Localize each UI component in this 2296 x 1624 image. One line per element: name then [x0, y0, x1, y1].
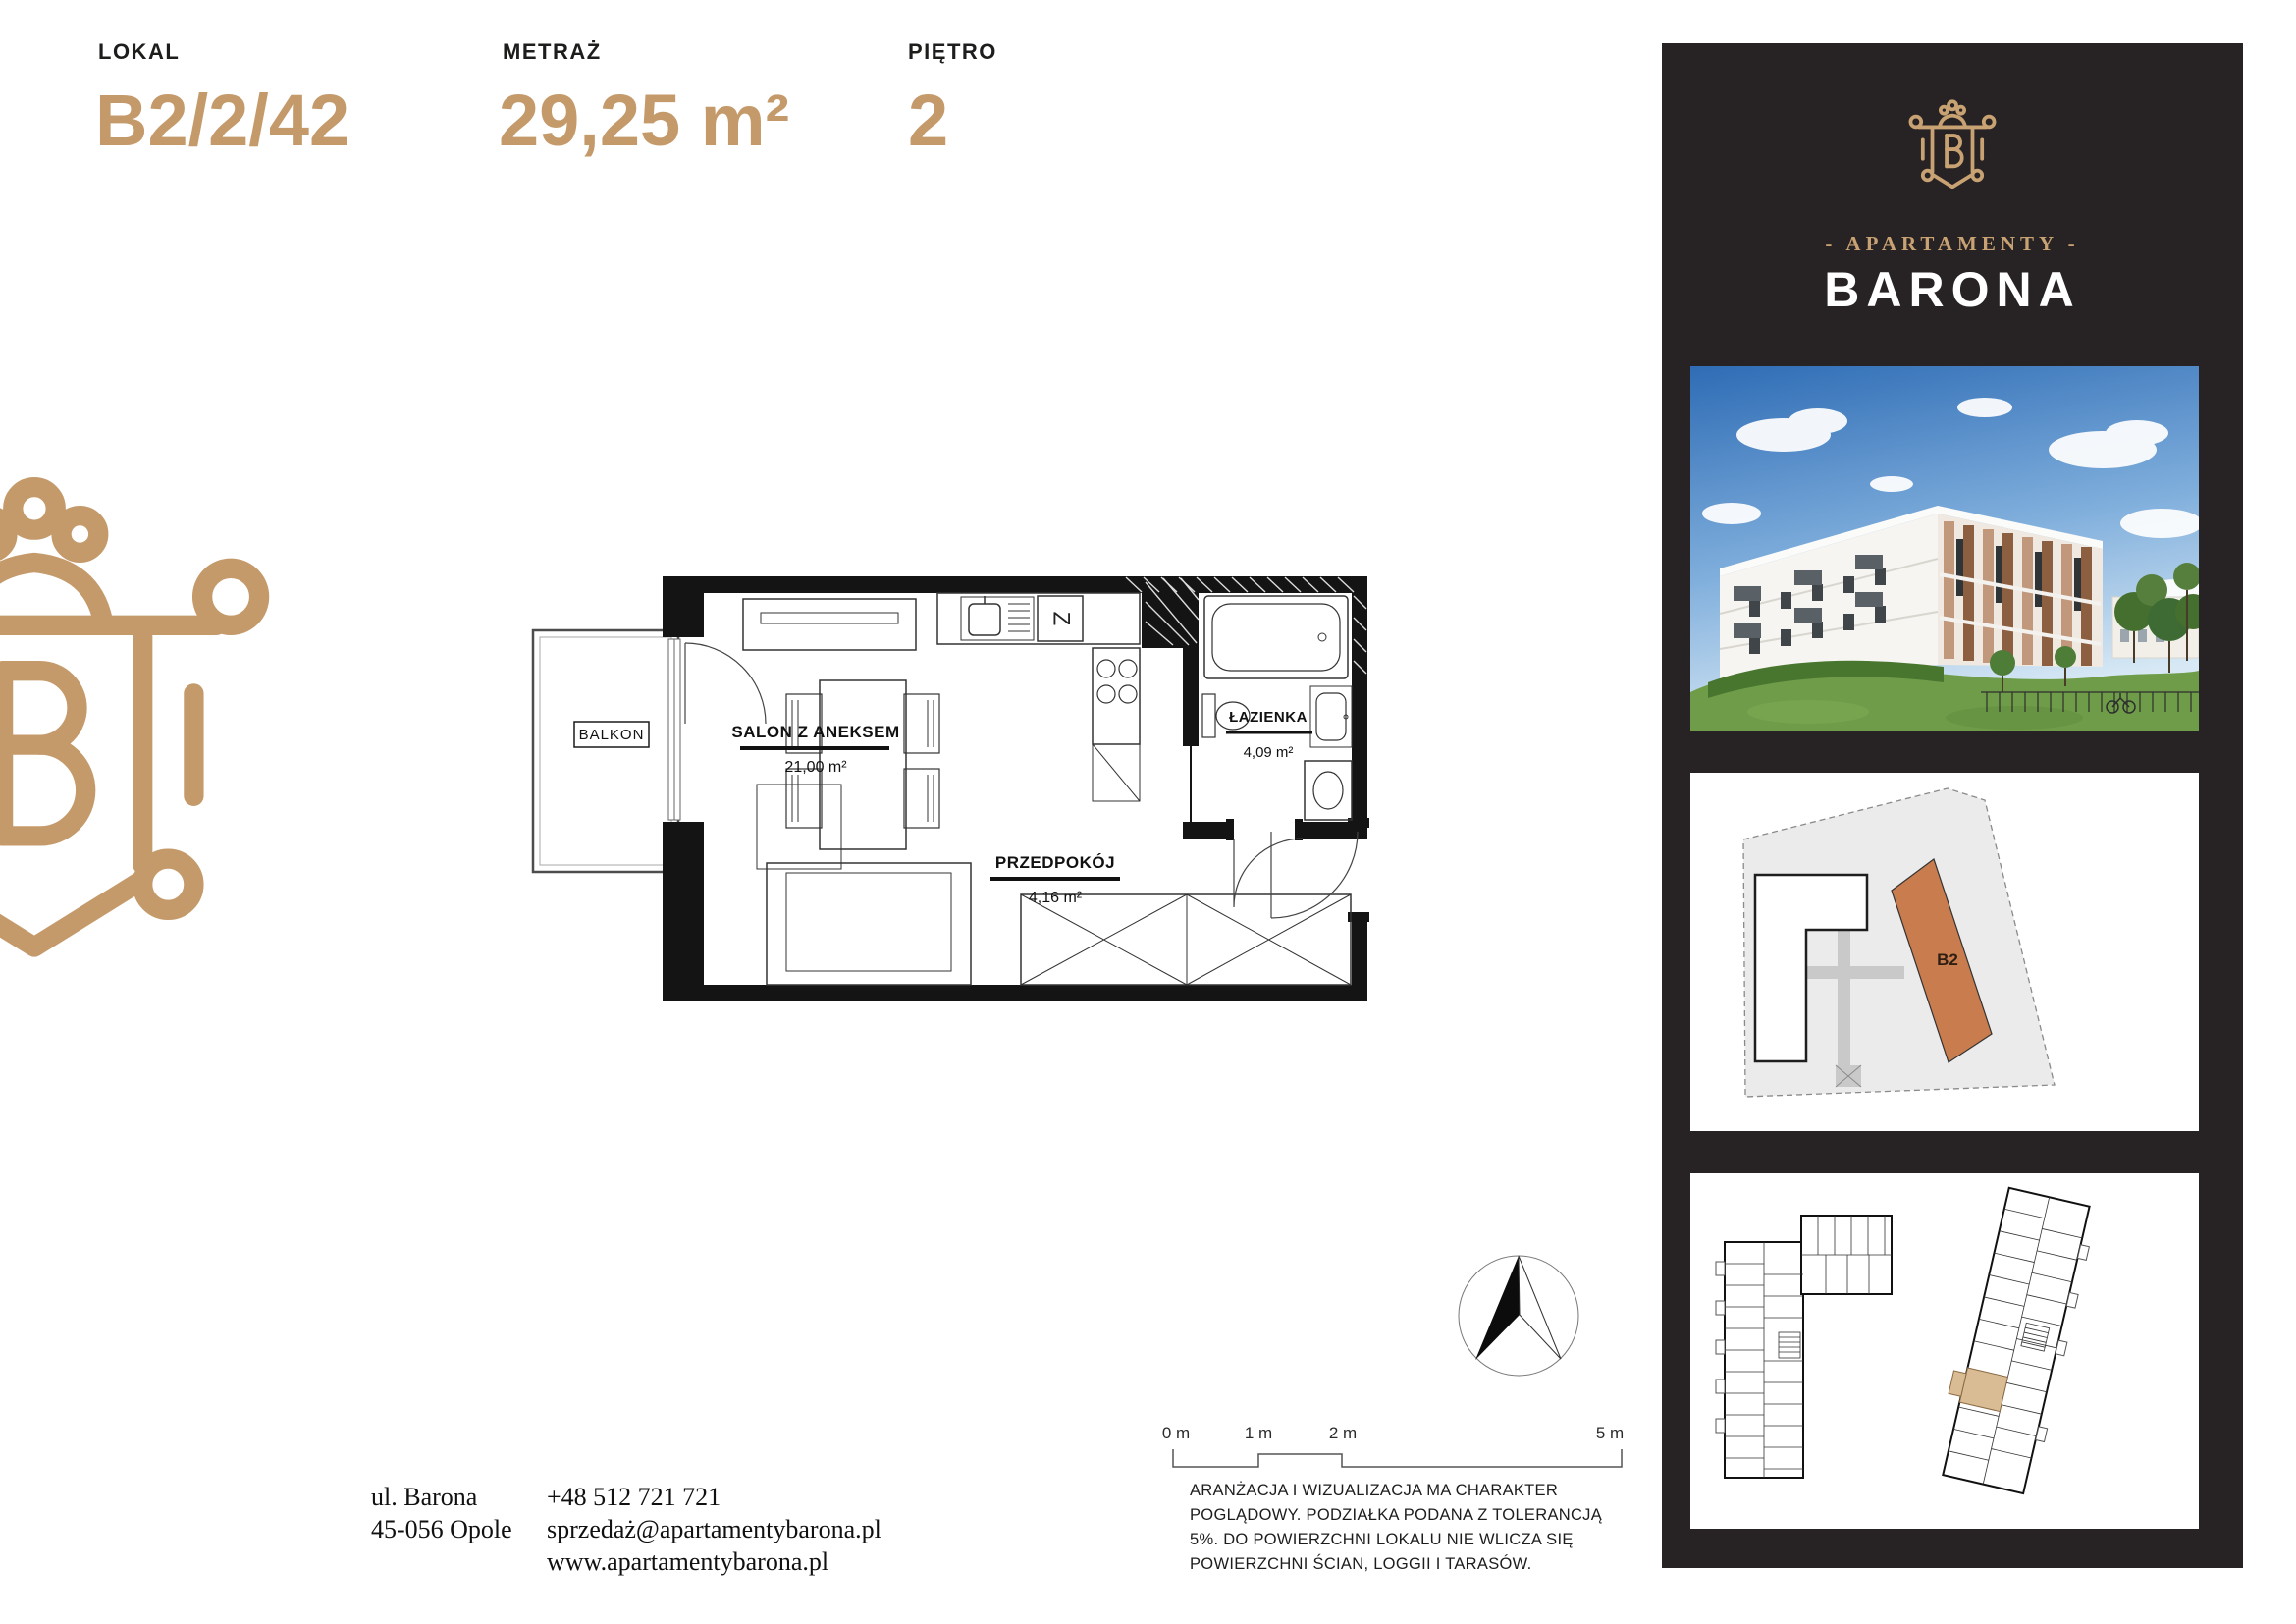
brand-sidebar: - APARTAMENTY - BARONA — [1662, 43, 2243, 1568]
kitchen-appliance-symbol: Z — [1048, 612, 1075, 626]
salon-furniture — [743, 599, 971, 985]
scale-label-2: 2 m — [1323, 1424, 1362, 1443]
scale-label-1: 1 m — [1239, 1424, 1278, 1443]
floorplans-panel — [1690, 1173, 2199, 1529]
room-name-przedpokoj: PRZEDPOKÓJ — [995, 853, 1115, 872]
brand-tagline: - APARTAMENTY - — [1662, 232, 2243, 256]
lokal-label: LOKAL — [98, 39, 180, 65]
metraz-label: METRAŻ — [503, 39, 602, 65]
bathroom-fixtures — [1202, 596, 1352, 820]
interior-doors — [1234, 832, 1358, 918]
address-line-1: ul. Barona — [371, 1481, 512, 1513]
contact-website[interactable]: www.apartamentybarona.pl — [547, 1545, 881, 1578]
apartment-floorplan: BALKON — [525, 574, 1369, 1011]
decorative-crest-art — [0, 449, 319, 1104]
sideboard — [743, 599, 916, 650]
contact-address: ul. Barona 45-056 Opole — [371, 1481, 512, 1545]
siteplan-building-label: B2 — [1937, 950, 1958, 969]
scale-label-0: 0 m — [1156, 1424, 1196, 1443]
building-photo — [1690, 366, 2199, 731]
room-labels: SALON Z ANEKSEM 21,00 m² ŁAZIENKA 4,09 m… — [731, 709, 1312, 906]
bathroom-door — [1234, 839, 1303, 907]
scale-bar-ruler — [1168, 1447, 1629, 1473]
entrance-door — [1271, 832, 1358, 918]
building-render-image — [1690, 366, 2199, 731]
balcony: BALKON — [533, 630, 678, 872]
room-name-lazienka: ŁAZIENKA — [1229, 709, 1308, 726]
lokal-value: B2/2/42 — [95, 79, 349, 162]
siteplan-panel: B2 — [1690, 773, 2199, 1131]
disclaimer-text: ARANŻACJA I WIZUALIZACJA MA CHARAKTER PO… — [1190, 1479, 1631, 1577]
metraz-value: 29,25 m² — [499, 79, 789, 162]
compass-north-icon — [1457, 1254, 1580, 1378]
wardrobe — [1021, 894, 1351, 985]
brand-name: BARONA — [1662, 261, 2243, 318]
pietro-value: 2 — [908, 79, 948, 162]
room-area-salon: 21,00 m² — [784, 759, 847, 776]
pietro-label: PIĘTRO — [908, 39, 997, 65]
flyer-page: LOKAL B2/2/42 METRAŻ 29,25 m² PIĘTRO 2 B… — [0, 0, 2296, 1624]
contact-phone: +48 512 721 721 — [547, 1481, 881, 1513]
brand-crest-logo — [1899, 94, 2005, 216]
contact-details: +48 512 721 721 sprzedaż@apartamentybaro… — [547, 1481, 881, 1578]
toilet — [1202, 694, 1215, 737]
room-name-salon: SALON Z ANEKSEM — [731, 723, 899, 741]
room-area-lazienka: 4,09 m² — [1244, 744, 1294, 761]
address-line-2: 45-056 Opole — [371, 1513, 512, 1545]
overview-building-b2 — [1931, 1185, 2099, 1495]
siteplan-map: B2 — [1690, 773, 2199, 1131]
contact-email[interactable]: sprzedaż@apartamentybarona.pl — [547, 1513, 881, 1545]
kitchen-area — [937, 593, 1140, 801]
floorplans-overview — [1690, 1173, 2199, 1529]
room-area-przedpokoj: 4,16 m² — [1029, 890, 1083, 906]
coffee-table — [757, 785, 841, 869]
balcony-label: BALKON — [579, 727, 645, 743]
washing-machine — [1305, 761, 1352, 820]
sofa — [767, 863, 971, 985]
scale-label-5: 5 m — [1588, 1424, 1631, 1443]
